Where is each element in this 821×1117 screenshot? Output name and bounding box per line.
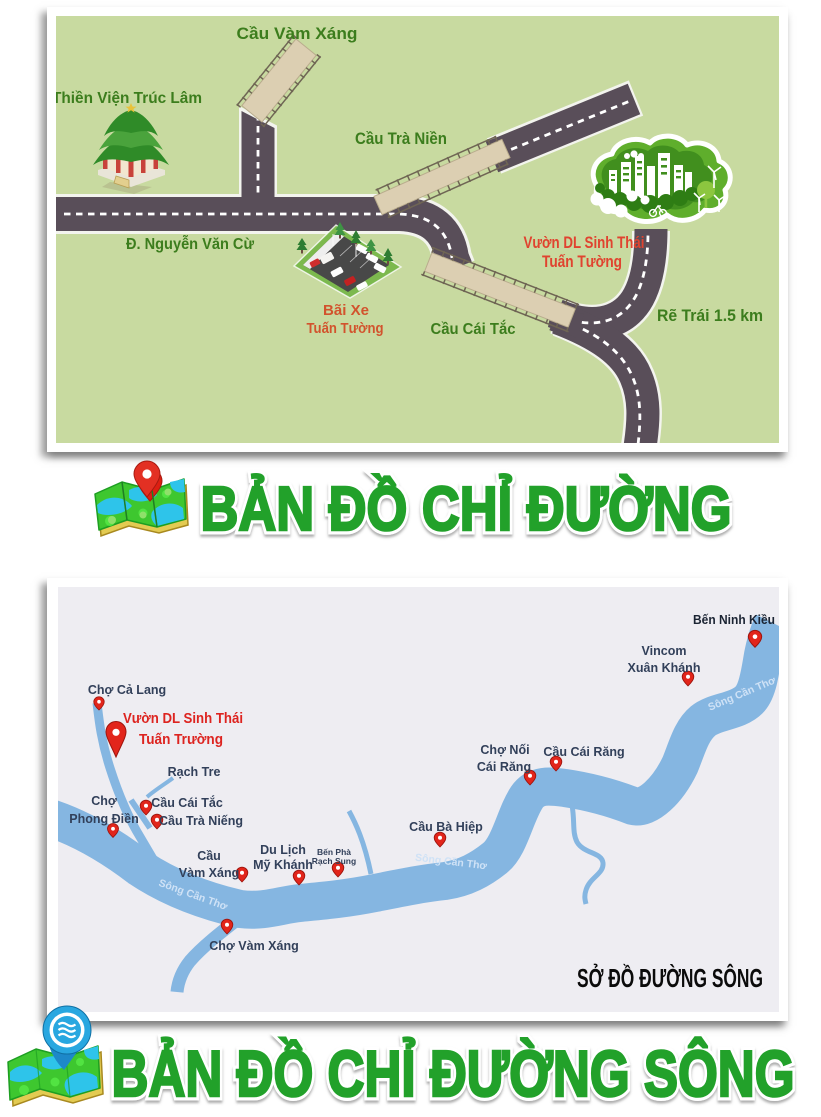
svg-text:Cầu Cái Tắc: Cầu Cái Tắc xyxy=(431,319,516,338)
svg-text:Chợ Nối: Chợ Nối xyxy=(480,743,529,757)
svg-text:Cầu Cái Tắc: Cầu Cái Tắc xyxy=(151,795,223,810)
svg-text:Cầu Trà Niếng: Cầu Trà Niếng xyxy=(159,814,243,828)
svg-text:SỞ ĐỒ ĐƯỜNG SÔNG: SỞ ĐỒ ĐƯỜNG SÔNG xyxy=(577,962,763,993)
svg-text:Cầu Bà Hiệp: Cầu Bà Hiệp xyxy=(409,820,483,834)
svg-text:Xuân Khánh: Xuân Khánh xyxy=(628,661,701,675)
svg-text:Cầu Trà Niền: Cầu Trà Niền xyxy=(355,129,447,148)
svg-text:Cầu: Cầu xyxy=(197,849,221,863)
svg-text:Vincom: Vincom xyxy=(642,644,687,658)
svg-text:Chợ Vàm Xáng: Chợ Vàm Xáng xyxy=(209,939,298,953)
svg-text:Đ. Nguyễn Văn Cừ: Đ. Nguyễn Văn Cừ xyxy=(126,234,254,253)
svg-text:Vườn DL Sinh Thái: Vườn DL Sinh Thái xyxy=(524,233,645,252)
svg-text:Vườn DL Sinh Thái: Vườn DL Sinh Thái xyxy=(123,710,243,727)
svg-text:Rạch Tre: Rạch Tre xyxy=(168,765,221,779)
svg-text:Mỹ Khánh: Mỹ Khánh xyxy=(253,858,313,872)
svg-text:Chợ Cả Lang: Chợ Cả Lang xyxy=(88,683,166,697)
svg-text:Phong Điền: Phong Điền xyxy=(69,812,138,826)
svg-text:Cái Răng: Cái Răng xyxy=(477,760,531,774)
svg-text:Cầu Vàm Xáng: Cầu Vàm Xáng xyxy=(237,24,358,43)
svg-text:Chợ: Chợ xyxy=(91,794,117,808)
svg-text:Bãi Xe: Bãi Xe xyxy=(323,302,369,319)
svg-text:Rạch Sung: Rạch Sung xyxy=(312,856,356,866)
svg-text:Bến Ninh Kiều: Bến Ninh Kiều xyxy=(693,612,775,627)
svg-text:Rẽ Trái 1.5 km: Rẽ Trái 1.5 km xyxy=(657,306,763,325)
svg-text:BẢN ĐỒ CHỈ ĐƯỜNG SÔNG: BẢN ĐỒ CHỈ ĐƯỜNG SÔNG xyxy=(112,1037,795,1110)
svg-text:Du Lịch: Du Lịch xyxy=(260,843,306,857)
svg-text:BẢN ĐỒ CHỈ ĐƯỜNG: BẢN ĐỒ CHỈ ĐƯỜNG xyxy=(201,475,732,544)
svg-text:Cầu Cái Răng: Cầu Cái Răng xyxy=(543,745,624,759)
svg-text:Tuấn Trường: Tuấn Trường xyxy=(139,731,223,748)
svg-text:Thiền Viện Trúc Lâm: Thiền Viện Trúc Lâm xyxy=(56,90,202,107)
svg-text:Tuấn Tường: Tuấn Tường xyxy=(542,252,622,271)
svg-text:Tuấn Tường: Tuấn Tường xyxy=(307,320,384,337)
svg-text:Vàm Xáng: Vàm Xáng xyxy=(179,866,239,880)
